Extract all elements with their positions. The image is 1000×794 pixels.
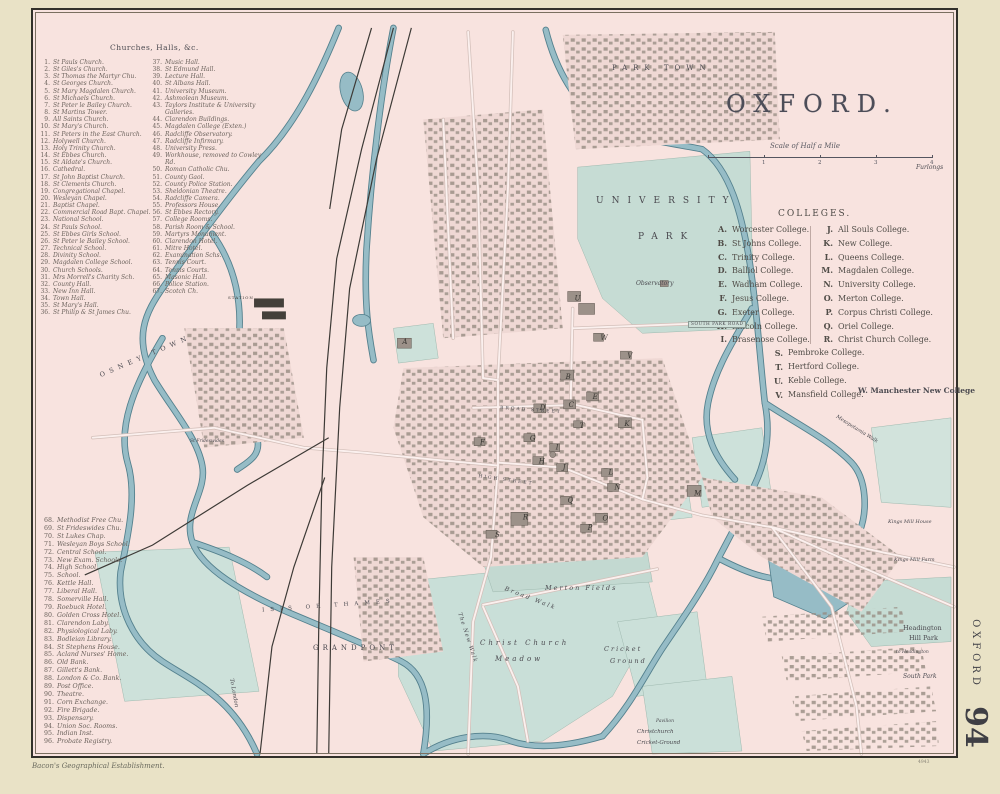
legend-item: 4.St Georges Church. [38, 80, 160, 87]
svg-text:W: W [601, 334, 609, 342]
scale-caption: Scale of Half a Mile [770, 142, 840, 150]
legend-item: 63.Tennis Court. [150, 259, 272, 266]
svg-text:H: H [538, 458, 546, 466]
map-label-meadow: Meadow [495, 655, 543, 663]
legend-item: 14.St Ebbes Church. [38, 152, 160, 159]
legend-item: 2.St Giles's Church. [38, 66, 160, 73]
svg-text:N: N [613, 483, 621, 491]
legend-item: 25.St Ebbes Girls School. [38, 231, 160, 238]
legend-item: 91.Corn Exchange. [42, 699, 174, 707]
legend-item: 3.St Thomas the Martyr Chu. [38, 73, 160, 80]
college-item: A.Worcester College. [714, 223, 814, 237]
legend-item: 19.Congregational Chapel. [38, 188, 160, 195]
legend-item: 48.University Press. [150, 145, 272, 152]
legend-item: 62.Examination Schs. [150, 252, 272, 259]
legend-item: 38.St Edmund Hall. [150, 66, 272, 73]
college-item: G.Exeter College. [714, 306, 814, 320]
legend-item: 51.County Gaol. [150, 174, 272, 181]
map-label-headington: Headington [903, 624, 942, 632]
legend-item: 87.Gillett's Bank. [42, 667, 174, 675]
svg-text:L: L [608, 469, 614, 477]
legend-item: 73.New Exam. Schools. [42, 557, 174, 565]
map-label-park-town: PARK TOWN [612, 64, 712, 72]
map-label-merton-fields: Merton Fields [545, 584, 617, 592]
svg-text:P: P [587, 524, 593, 532]
legend-item: 61.Mitre Hotel. [150, 245, 272, 252]
legend-item: 7.St Peter le Bailey Church. [38, 102, 160, 109]
legend-item: 29.Magdalen College School. [38, 259, 160, 266]
map-label-to-headington: to Headington [896, 650, 929, 655]
college-item: N.University College. [820, 278, 955, 292]
legend-item: 50.Roman Catholic Chu. [150, 166, 272, 173]
map-label-christ-church: Christ Church [480, 639, 569, 647]
legend-item: 95.Indian Inst. [42, 730, 174, 738]
legend-item: 78.Somerville Hall. [42, 596, 174, 604]
college-item: Q.Oriel College. [820, 320, 955, 334]
legend-item: 28.Divinity School. [38, 252, 160, 259]
margin-plate-number: 94 [963, 697, 993, 757]
college-item: T.Hertford College. [770, 360, 880, 374]
legend-item: 5.St Mary Magdalen Church. [38, 88, 160, 95]
legend-item: 52.County Police Station. [150, 181, 272, 188]
college-item: M.Magdalen College. [820, 264, 955, 278]
svg-text:G: G [530, 435, 536, 443]
legend-item: 30.Church Schools. [38, 267, 160, 274]
churches-col3: 68.Methodist Free Chu.69.St Frideswides … [42, 517, 174, 746]
legend-item: 47.Radcliffe Infirmary. [150, 138, 272, 145]
svg-text:V: V [627, 352, 633, 360]
legend-item: 84.St Stephens House. [42, 644, 174, 652]
legend-item: 35.St Mary's Hall. [38, 302, 160, 309]
legend-item: 39.Lecture Hall. [150, 73, 272, 80]
legend-item: 24.St Pauls School. [38, 224, 160, 231]
svg-text:S: S [495, 531, 500, 539]
svg-text:C: C [569, 401, 575, 409]
legend-item: 15.St Aldate's Church. [38, 159, 160, 166]
legend-item: 43.Taylors Institute & University Galler… [150, 102, 272, 116]
legend-item: 6.St Michaels Church. [38, 95, 160, 102]
margin-vertical-title: OXFORD [969, 619, 981, 689]
legend-item: 11.St Peters in the East Church. [38, 131, 160, 138]
map-label-christchurch: Christchurch [637, 729, 674, 735]
legend-item: 80.Golden Cross Hotel. [42, 612, 174, 620]
svg-text:I: I [555, 444, 559, 452]
legend-item: 53.Sheldonian Theatre. [150, 188, 272, 195]
map-label-park: PARK [638, 232, 695, 242]
map-label-south-park: South Park [903, 673, 937, 680]
legend-item: 49.Workhouse, removed to Cowley Rd. [150, 152, 272, 166]
legend-item: 59.Martyrs Monument. [150, 231, 272, 238]
legend-item: 92.Fire Brigade. [42, 707, 174, 715]
legend-item: 76.Kettle Hall. [42, 580, 174, 588]
legend-item: 57.College Rooms. [150, 216, 272, 223]
churches-col2: 37.Music Hall.38.St Edmund Hall.39.Lectu… [150, 59, 272, 295]
legend-item: 75.School. [42, 572, 174, 580]
legend-item: 93.Dispensary. [42, 715, 174, 723]
legend-item: 20.Wesleyan Chapel. [38, 195, 160, 202]
churches-col1: 1.St Pauls Church.2.St Giles's Church.3.… [38, 59, 160, 317]
legend-item: 18.St Clements Church. [38, 181, 160, 188]
svg-text:A: A [401, 338, 407, 346]
legend-item: 33.New Inn Hall. [38, 288, 160, 295]
legend-item: 71.Wesleyan Boys School. [42, 541, 174, 549]
legend-item: 94.Union Soc. Rooms. [42, 723, 174, 731]
colleges-col1: A.Worcester College.B.St Johns College.C… [714, 223, 814, 347]
legend-item: 44.Clarendon Buildings. [150, 116, 272, 123]
college-item: B.St Johns College. [714, 237, 814, 251]
legend-item: 90.Theatre. [42, 691, 174, 699]
map-label-station: STATION [228, 295, 254, 300]
map-label-kings-mill-house: Kings Mill House [888, 519, 932, 525]
map-title: OXFORD. [726, 90, 899, 118]
map-label-grandpont: GRANDPONT [313, 644, 398, 652]
map-label-cricket-ground: Cricket-Ground [637, 740, 680, 746]
colleges-heading: COLLEGES. [778, 209, 851, 219]
legend-item: 58.Parish Room & School. [150, 224, 272, 231]
college-item: L.Queens College. [820, 251, 955, 265]
legend-item: 85.Acland Nurses' Home. [42, 651, 174, 659]
legend-item: 12.Holywell Church. [38, 138, 160, 145]
svg-text:R: R [522, 513, 528, 521]
college-item: P.Corpus Christi College. [820, 306, 955, 320]
legend-item: 72.Central School. [42, 549, 174, 557]
legend-item: 60.Clarendon Hotel. [150, 238, 272, 245]
legend-item: 31.Mrs Morrell's Charity Sch. [38, 274, 160, 281]
legend-item: 46.Radcliffe Observatory. [150, 131, 272, 138]
scale-bar: 1 2 3 4 [708, 157, 932, 158]
legend-item: 42.Ashmolean Museum. [150, 95, 272, 102]
legend-item: 22.Commercial Road Bapt. Chapel. [38, 209, 160, 216]
svg-text:Q: Q [568, 496, 574, 504]
legend-item: 23.National School. [38, 216, 160, 223]
map-label-observatory: Observatory [636, 280, 674, 287]
legend-item: 27.Technical School. [38, 245, 160, 252]
legend-item: 54.Radcliffe Camera. [150, 195, 272, 202]
imprint: Bacon's Geographical Establishment. [32, 762, 165, 770]
map-label-university: UNIVERSITY [596, 196, 737, 206]
legend-item: 32.County Hall. [38, 281, 160, 288]
legend-item: 37.Music Hall. [150, 59, 272, 66]
legend-item: 40.St Albans Hall. [150, 80, 272, 87]
legend-item: 41.University Museum. [150, 88, 272, 95]
scale-tick-label: 2 [818, 160, 822, 166]
legend-item: 21.Baptist Chapel. [38, 202, 160, 209]
map-label-hill-park: Hill Park [909, 634, 938, 642]
legend-item: 1.St Pauls Church. [38, 59, 160, 66]
legend-item: 17.St John Baptist Church. [38, 174, 160, 181]
legend-item: 9.All Saints Church. [38, 116, 160, 123]
churches-heading: Churches, Halls, &c. [110, 43, 199, 52]
legend-item: 68.Methodist Free Chu. [42, 517, 174, 525]
legend-item: 56.St Ebbes Rectory. [150, 209, 272, 216]
legend-item: 55.Professors House. [150, 202, 272, 209]
legend-item: 26.St Peter le Bailey School. [38, 238, 160, 245]
scale-tick-label: 1 [762, 160, 766, 166]
svg-text:E: E [592, 393, 598, 401]
legend-item: 36.St Philip & St James Chu. [38, 309, 160, 316]
legend-item: 77.Liberal Hall. [42, 588, 174, 596]
legend-item: 45.Magdalen College (Exten.) [150, 123, 272, 130]
college-item: E.Wadham College. [714, 278, 814, 292]
legend-item: 83.Bodleian Library. [42, 636, 174, 644]
legend-item: 89.Post Office. [42, 683, 174, 691]
legend-item: 70.St Lukes Chap. [42, 533, 174, 541]
legend-item: 66.Police Station. [150, 281, 272, 288]
legend-item: 16.Cathedral. [38, 166, 160, 173]
legend-item: 8.St Martins Tower. [38, 109, 160, 116]
svg-text:B: B [565, 373, 571, 381]
college-item: O.Merton College. [820, 292, 955, 306]
map-label-ground: Ground [610, 657, 647, 665]
legend-item: 81.Clarendon Laby. [42, 620, 174, 628]
map-label-south-park-road: SOUTH PARK ROAD [688, 321, 746, 328]
legend-item: 64.Tennis Courts. [150, 267, 272, 274]
college-item: D.Balliol College. [714, 264, 814, 278]
scale-tick-label: 3 [874, 160, 878, 166]
svg-text:O: O [603, 514, 609, 522]
legend-item: 65.Masonic Hall. [150, 274, 272, 281]
legend-item: 96.Probate Registry. [42, 738, 174, 746]
legend-item: 13.Holy Trinity Church. [38, 145, 160, 152]
legend-divider [810, 226, 811, 344]
plate-code: 4943 [918, 760, 929, 765]
college-item: K.New College. [820, 237, 955, 251]
svg-text:M: M [693, 489, 702, 497]
college-item: S.Pembroke College. [770, 346, 880, 360]
map-label-pavilion: Pavilion [656, 719, 674, 724]
college-item: F.Jesus College. [714, 292, 814, 306]
legend-item: 82.Physiological Laby. [42, 628, 174, 636]
atlas-page: { "title": "OXFORD.", "scale": {"caption… [0, 0, 1000, 794]
college-item: C.Trinity College. [714, 251, 814, 265]
colleges-col2: J.All Souls College.K.New College.L.Quee… [820, 223, 955, 347]
scale-unit: Furlongs [916, 164, 943, 171]
college-item: J.All Souls College. [820, 223, 955, 237]
svg-text:K: K [623, 420, 630, 428]
map-label-cricket: Cricket [604, 645, 642, 653]
legend-item: 34.Town Hall. [38, 295, 160, 302]
legend-item: 10.St Mary's Church. [38, 123, 160, 130]
map-label-st-frideswides: St Frideswides [190, 439, 224, 444]
legend-item: 86.Old Bank. [42, 659, 174, 667]
college-item-w: W. Manchester New College [858, 386, 975, 395]
legend-item: 88.London & Co. Bank. [42, 675, 174, 683]
legend-item: 79.Roebuck Hotel. [42, 604, 174, 612]
legend-item: 69.St Frideswides Chu. [42, 525, 174, 533]
legend-item: 74.High School. [42, 564, 174, 572]
map-label-kings-mill-farm: Kings Mill Farm [894, 557, 935, 563]
